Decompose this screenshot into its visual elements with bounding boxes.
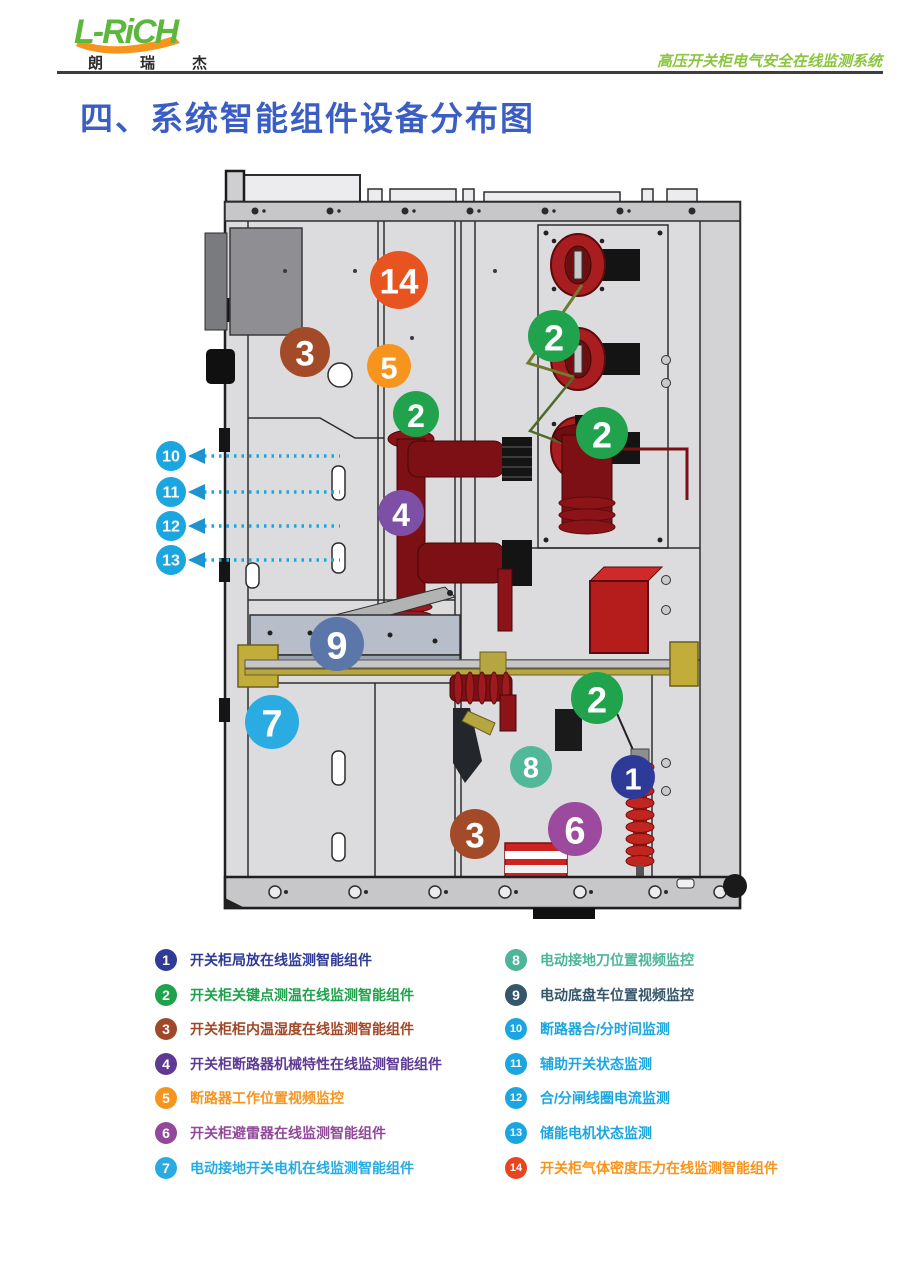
arrowhead-icon xyxy=(188,552,205,568)
header-tagline: 高压开关柜电气安全在线监测系统 xyxy=(480,50,882,71)
svg-text:13: 13 xyxy=(162,552,180,569)
cabinet-top-tabs xyxy=(226,171,697,202)
page: { "header": { "logo_text": "L-RiCH", "lo… xyxy=(0,0,900,1272)
legend-number-badge: 2 xyxy=(155,984,177,1006)
legend-item-8: 8电动接地刀位置视频监控 xyxy=(505,948,694,972)
legend-number-badge: 4 xyxy=(155,1053,177,1075)
marker-3: 3 xyxy=(280,327,330,377)
marker-4: 4 xyxy=(378,490,424,536)
legend-label: 开关柜局放在线监测智能组件 xyxy=(190,950,372,970)
svg-text:12: 12 xyxy=(162,518,180,535)
marker-1: 1 xyxy=(611,755,655,799)
legend-number-badge: 5 xyxy=(155,1087,177,1109)
legend-item-11: 11辅助开关状态监测 xyxy=(505,1052,652,1076)
svg-text:3: 3 xyxy=(295,335,314,374)
legend-number-badge: 10 xyxy=(505,1018,527,1040)
legend-item-10: 10断路器合/分时间监测 xyxy=(505,1017,670,1041)
svg-text:11: 11 xyxy=(163,484,180,501)
svg-text:1: 1 xyxy=(624,761,641,796)
svg-text:5: 5 xyxy=(380,350,397,385)
svg-text:10: 10 xyxy=(162,448,180,465)
svg-text:14: 14 xyxy=(380,263,419,302)
company-logo: L-RiCH xyxy=(70,10,240,56)
figure-area: 14352224972816310111213 xyxy=(150,163,762,928)
legend-label: 开关柜关键点测温在线监测智能组件 xyxy=(190,985,414,1005)
arrowhead-icon xyxy=(188,448,205,464)
cabinet-base xyxy=(225,874,747,919)
legend-number-badge: 11 xyxy=(505,1053,527,1075)
legend-number-badge: 7 xyxy=(155,1157,177,1179)
legend-item-5: 5断路器工作位置视频监控 xyxy=(155,1086,344,1110)
legend-label: 电动接地开关电机在线监测智能组件 xyxy=(190,1158,414,1178)
legend-label: 开关柜气体密度压力在线监测智能组件 xyxy=(540,1158,778,1178)
legend-label: 断路器合/分时间监测 xyxy=(540,1019,670,1039)
section-title: 四、系统智能组件设备分布图 xyxy=(80,92,535,140)
svg-text:8: 8 xyxy=(523,753,539,785)
legend-label: 断路器工作位置视频监控 xyxy=(190,1088,344,1108)
arrowhead-icon xyxy=(188,518,205,534)
legend-number-badge: 14 xyxy=(505,1157,527,1179)
legend-item-9: 9电动底盘车位置视频监控 xyxy=(505,983,694,1007)
marker-3: 3 xyxy=(450,809,500,859)
legend-number-badge: 12 xyxy=(505,1087,527,1109)
legend-number-badge: 13 xyxy=(505,1122,527,1144)
legend-item-14: 14开关柜气体密度压力在线监测智能组件 xyxy=(505,1156,778,1180)
cabinet-diagram: 14352224972816310111213 xyxy=(150,163,762,928)
legend-label: 开关柜避雷器在线监测智能组件 xyxy=(190,1123,386,1143)
marker-8: 8 xyxy=(510,746,552,788)
marker-2: 2 xyxy=(393,391,439,437)
legend: 1开关柜局放在线监测智能组件2开关柜关键点测温在线监测智能组件3开关柜柜内温湿度… xyxy=(0,948,900,1198)
legend-label: 开关柜断路器机械特性在线监测智能组件 xyxy=(190,1054,442,1074)
legend-number-badge: 3 xyxy=(155,1018,177,1040)
marker-9: 9 xyxy=(310,617,364,671)
legend-number-badge: 6 xyxy=(155,1122,177,1144)
legend-number-badge: 1 xyxy=(155,949,177,971)
legend-item-2: 2开关柜关键点测温在线监测智能组件 xyxy=(155,983,414,1007)
header-divider xyxy=(57,71,883,74)
marker-2: 2 xyxy=(571,672,623,724)
legend-number-badge: 8 xyxy=(505,949,527,971)
marker-7: 7 xyxy=(245,695,299,749)
legend-item-7: 7电动接地开关电机在线监测智能组件 xyxy=(155,1156,414,1180)
legend-item-4: 4开关柜断路器机械特性在线监测智能组件 xyxy=(155,1052,442,1076)
legend-label: 电动接地刀位置视频监控 xyxy=(540,950,694,970)
marker-2: 2 xyxy=(528,310,580,362)
legend-item-3: 3开关柜柜内温湿度在线监测智能组件 xyxy=(155,1017,414,1041)
svg-text:3: 3 xyxy=(465,817,484,856)
svg-text:2: 2 xyxy=(587,680,607,721)
svg-text:9: 9 xyxy=(326,625,347,667)
svg-text:2: 2 xyxy=(407,398,425,434)
legend-label: 电动底盘车位置视频监控 xyxy=(540,985,694,1005)
arrowhead-icon xyxy=(188,484,205,500)
legend-item-12: 12合/分闸线圈电流监测 xyxy=(505,1086,670,1110)
legend-label: 开关柜柜内温湿度在线监测智能组件 xyxy=(190,1019,414,1039)
legend-label: 辅助开关状态监测 xyxy=(540,1054,652,1074)
svg-text:2: 2 xyxy=(592,415,612,456)
legend-item-6: 6开关柜避雷器在线监测智能组件 xyxy=(155,1121,386,1145)
svg-text:4: 4 xyxy=(392,497,410,533)
legend-item-1: 1开关柜局放在线监测智能组件 xyxy=(155,948,372,972)
svg-text:2: 2 xyxy=(544,318,564,359)
legend-item-13: 13储能电机状态监测 xyxy=(505,1121,652,1145)
legend-label: 合/分闸线圈电流监测 xyxy=(540,1088,670,1108)
marker-14: 14 xyxy=(370,251,428,309)
logo-subtext: 朗瑞杰 xyxy=(88,52,244,73)
legend-label: 储能电机状态监测 xyxy=(540,1123,652,1143)
logo-text: L-RiCH xyxy=(74,13,181,51)
marker-2: 2 xyxy=(576,407,628,459)
marker-6: 6 xyxy=(548,802,602,856)
svg-text:6: 6 xyxy=(564,810,585,852)
marker-5: 5 xyxy=(367,344,411,388)
svg-text:7: 7 xyxy=(261,703,282,745)
legend-number-badge: 9 xyxy=(505,984,527,1006)
